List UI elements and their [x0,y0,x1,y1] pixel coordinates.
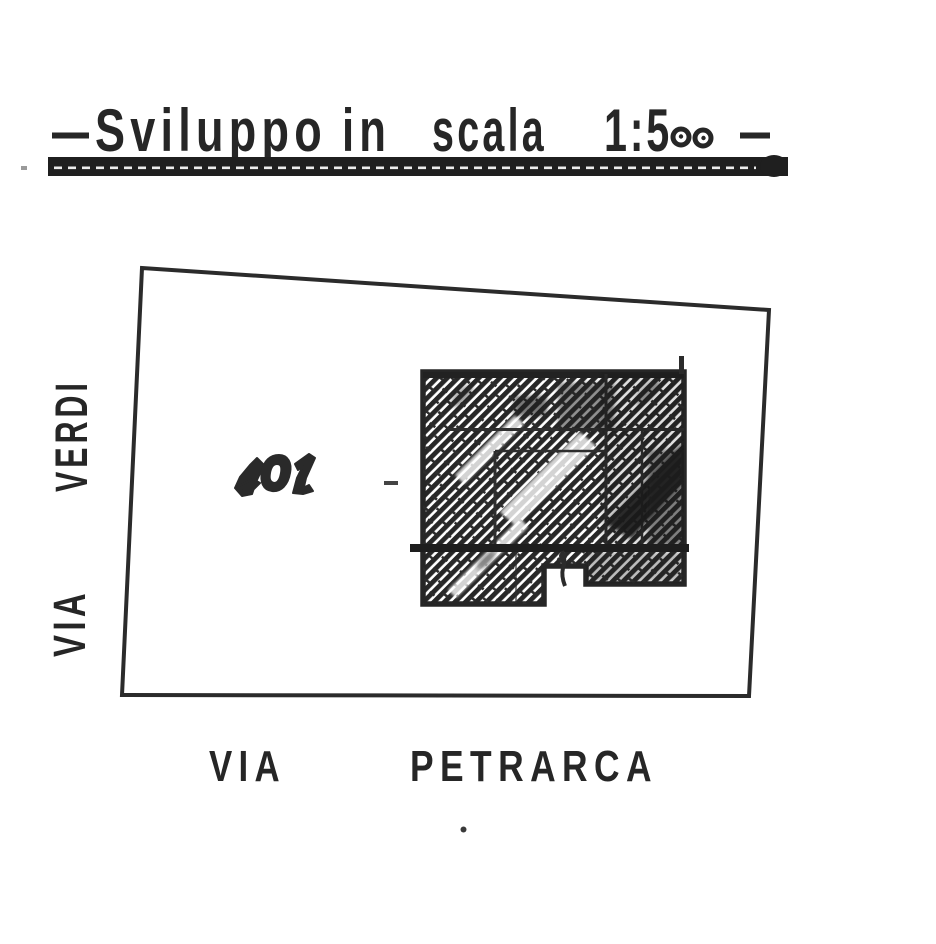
svg-text:1:5: 1:5 [604,97,672,164]
svg-text:VIA: VIA [44,589,95,657]
svg-text:PETRARCA: PETRARCA [410,742,658,791]
svg-text:scala: scala [432,97,547,164]
svg-text:VERDI: VERDI [46,379,97,492]
svg-text:in: in [342,97,391,164]
svg-text:Sviluppo: Sviluppo [95,97,327,164]
svg-text:VIA: VIA [209,742,286,791]
